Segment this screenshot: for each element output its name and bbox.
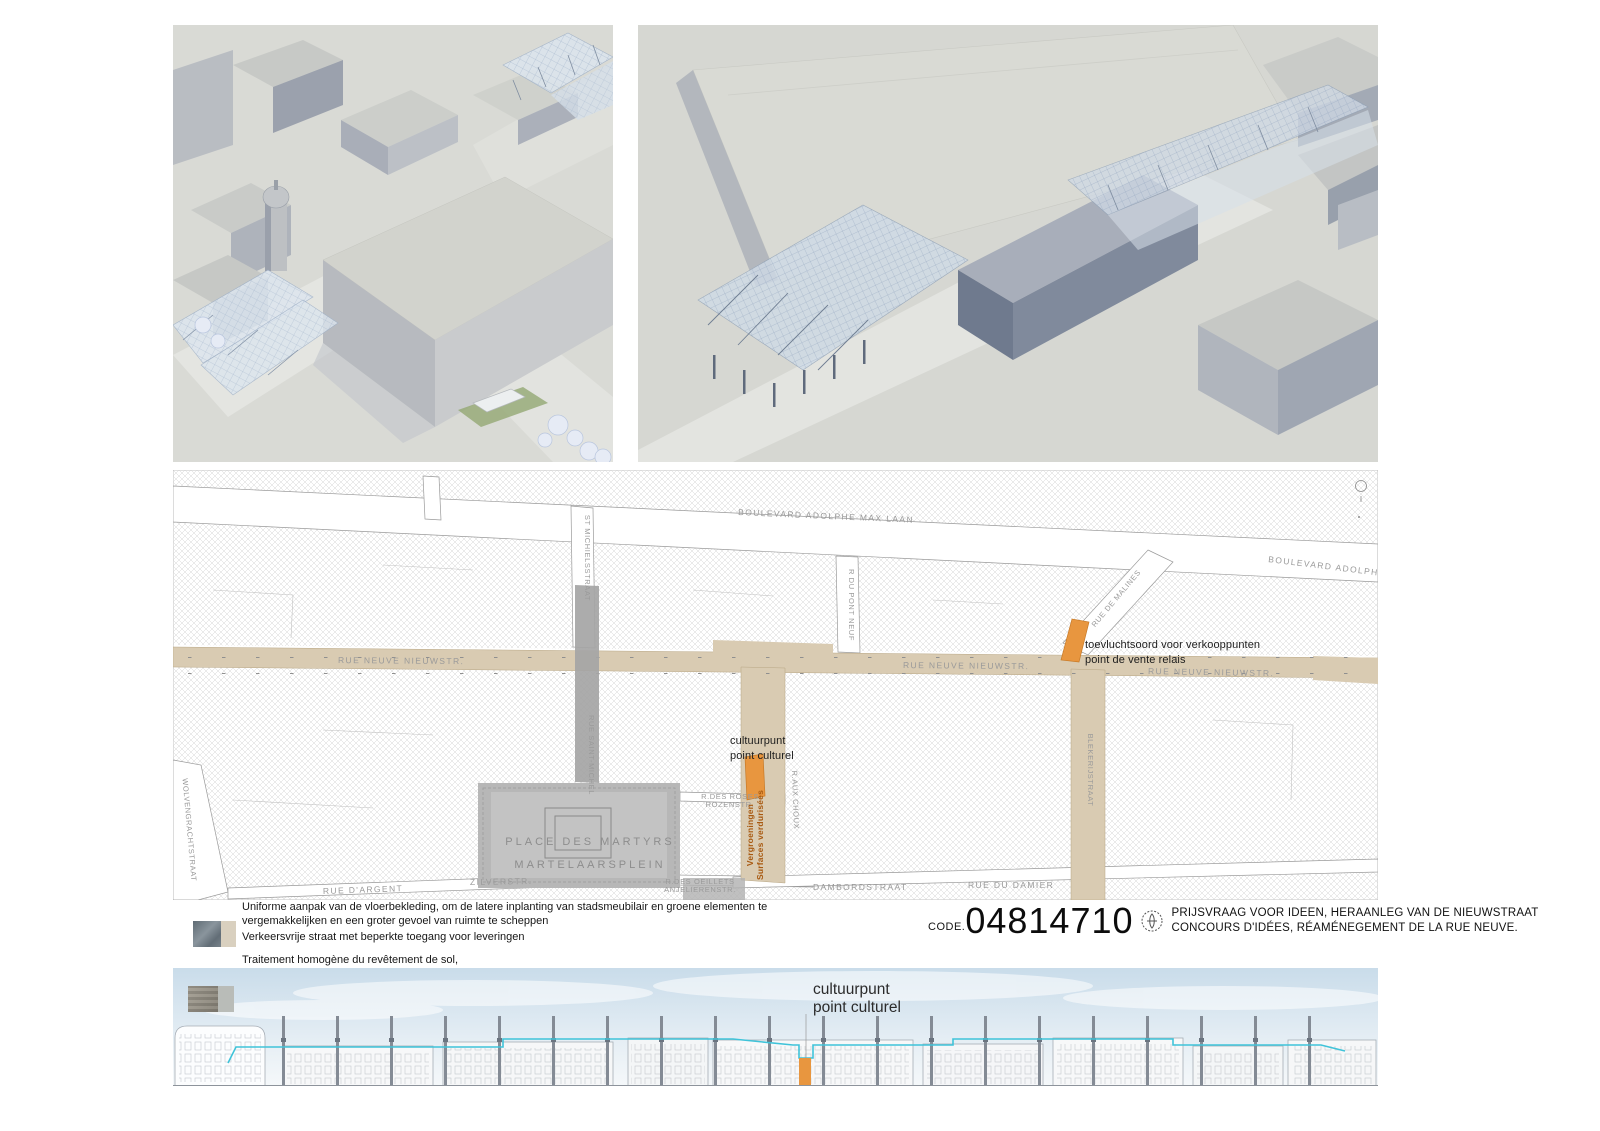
label-pont-neuf: R DU PONT NEUF	[847, 569, 856, 641]
street-elevation: cultuurpunt point culturel	[173, 968, 1378, 1086]
annotation-culture-nl: cultuurpunt	[730, 735, 786, 747]
street-elevation-drawing: cultuurpunt point culturel	[173, 968, 1378, 1086]
legend-swatch-stone	[188, 986, 234, 1012]
annotation-green-fr: Surfaces verdurisées	[755, 790, 765, 880]
render-left-drawing	[173, 25, 613, 462]
title-fr: CONCOURS D'IDÉES, RÉAMÉNEGEMENT DE LA RU…	[1172, 921, 1539, 936]
elevation-label-fr: point culturel	[813, 999, 901, 1016]
render-right-drawing	[638, 25, 1378, 462]
bluestone-texture-swatch	[193, 921, 221, 947]
legend-fr-paving-1: Traitement homogène du revêtement de sol…	[242, 954, 802, 968]
legend-nl-traffic: Verkeersvrije straat met beperkte toegan…	[242, 931, 802, 945]
legend-nl-paving: Uniforme aanpak van de vloerbekleding, o…	[242, 901, 802, 928]
label-martelaarsplein: MARTELAARSPLEIN	[514, 859, 665, 871]
gray-paving-swatch	[218, 986, 234, 1012]
masonry-texture-swatch	[188, 986, 218, 1012]
elevation-label-nl: cultuurpunt	[813, 981, 890, 998]
legend-swatch-paving	[193, 921, 236, 947]
label-rue-neuve-left: RUE NEUVE NIEUWSTR.	[338, 655, 464, 666]
code-label: CODE.	[928, 921, 965, 933]
annotation-green-nl: Vergroeningen	[745, 804, 755, 866]
title-nl: PRIJSVRAAG VOOR IDEEN, HERAANLEG VAN DE …	[1172, 906, 1539, 921]
label-blekerijstraat: BLEKERIJSTRAAT	[1086, 734, 1095, 807]
competition-board: BOULEVARD ADOLPHE MAX LAAN BOULEVARD ADO…	[0, 0, 1600, 1131]
annotation-culture-fr: point culturel	[730, 750, 794, 762]
site-plan: BOULEVARD ADOLPHE MAX LAAN BOULEVARD ADO…	[173, 470, 1378, 900]
label-place-des-martyrs: PLACE DES MARTYRS	[505, 836, 674, 848]
label-rue-neuve-mid: RUE NEUVE NIEUWSTR.	[903, 660, 1029, 671]
code-title-block: CODE.04814710 PRIJSVRAAG VOOR IDEEN, HER…	[928, 903, 1539, 939]
label-st-michielsstraat: ST MICHIELSSTRAAT	[583, 515, 592, 601]
render-aerial-right	[638, 25, 1378, 462]
stamp-icon	[1140, 909, 1164, 933]
cultuurpunt-elevation-marker	[799, 1058, 811, 1086]
annotation-refuge-nl: toevluchtsoord voor verkooppunten	[1085, 639, 1260, 651]
label-rue-saint-michel: RUE SAINT-MICHEL	[587, 715, 596, 795]
label-rue-du-damier: RUE DU DAMIER	[968, 880, 1054, 890]
competition-title: PRIJSVRAAG VOOR IDEEN, HERAANLEG VAN DE …	[1172, 906, 1539, 936]
beige-paving-swatch	[221, 921, 236, 947]
label-zilverstr: ZILVERSTR.	[470, 876, 533, 887]
code-number: 04814710	[965, 903, 1133, 939]
label-anjelierenstr: ANJELIERENSTR.	[664, 885, 736, 894]
annotation-refuge-fr: point de vente relais	[1085, 654, 1186, 666]
render-aerial-left	[173, 25, 613, 462]
label-dambordstraat: DAMBORDSTRAAT	[813, 882, 908, 892]
site-plan-drawing: BOULEVARD ADOLPHE MAX LAAN BOULEVARD ADO…	[173, 470, 1378, 900]
